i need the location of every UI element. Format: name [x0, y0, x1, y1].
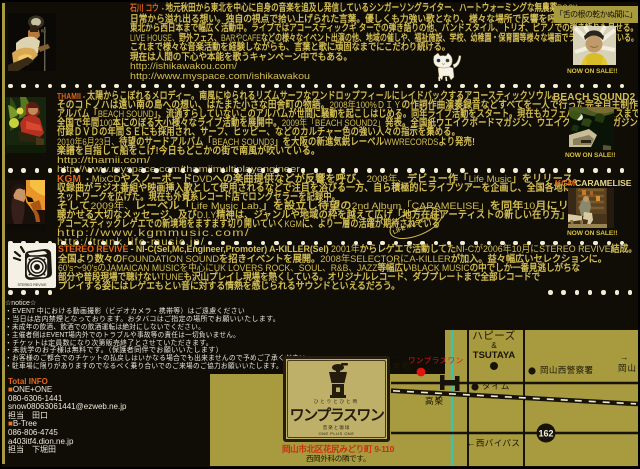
- svg-text:STEREO REVIVE: STEREO REVIVE: [18, 283, 48, 287]
- svg-text:162: 162: [538, 429, 553, 439]
